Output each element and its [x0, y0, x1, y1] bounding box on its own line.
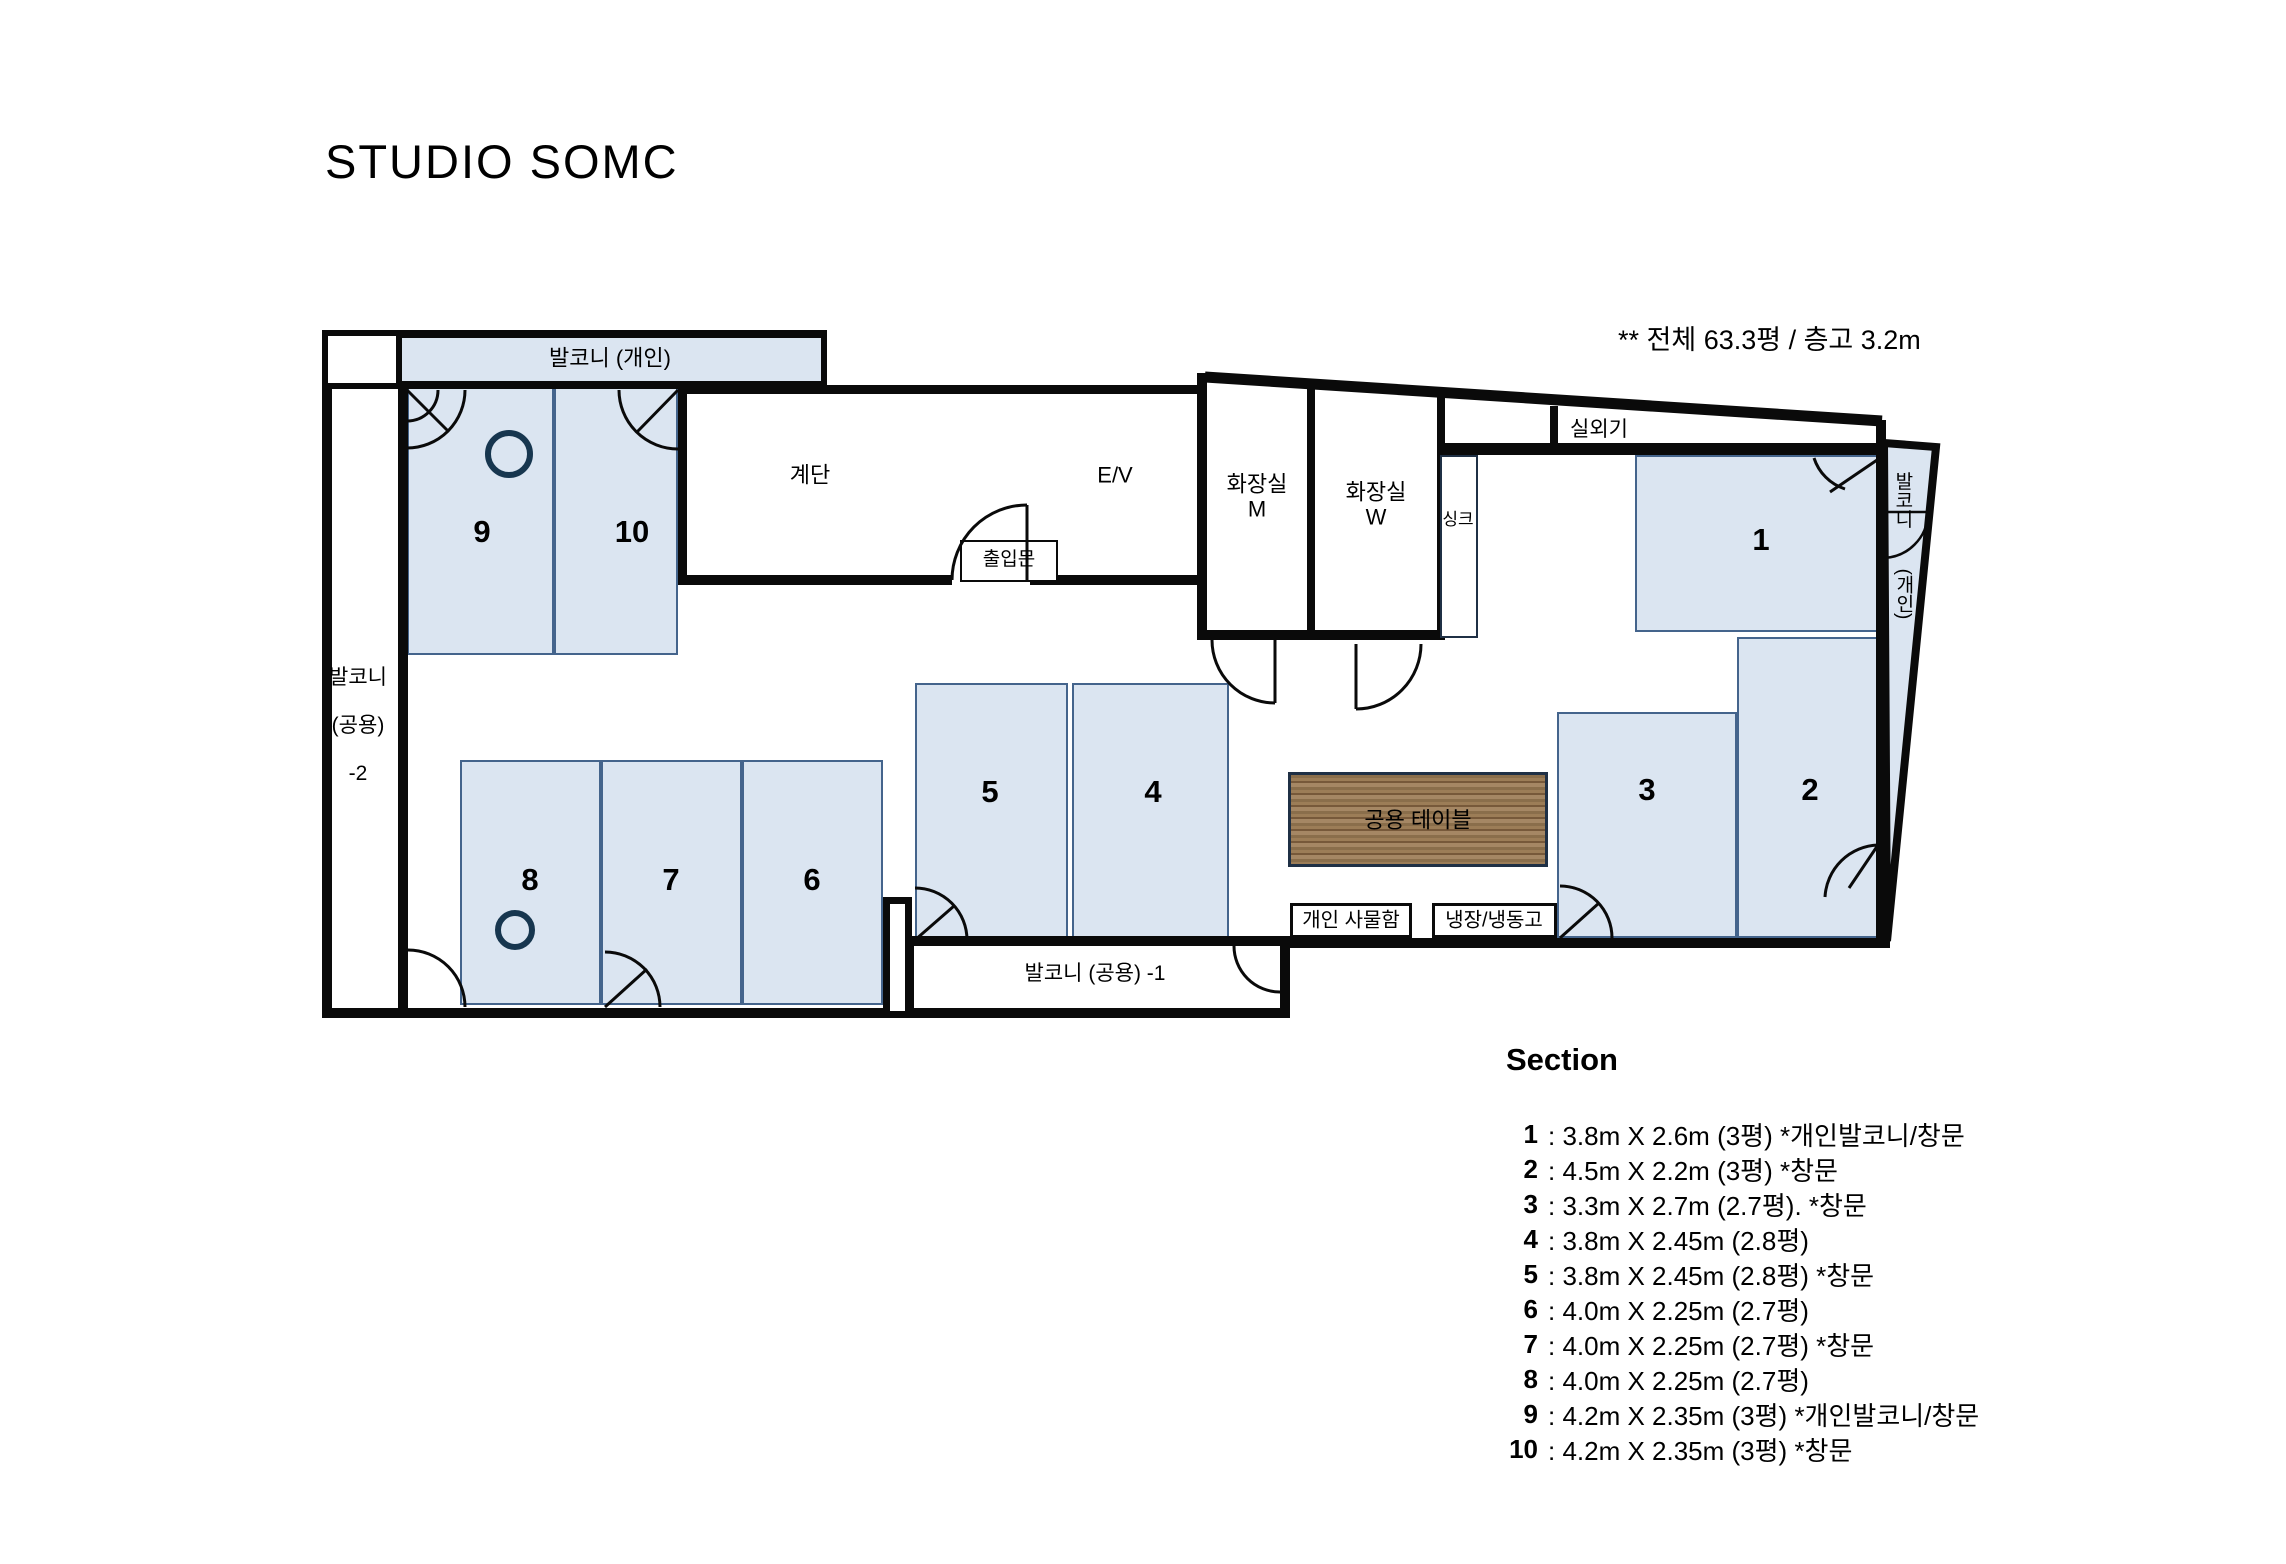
- wall-balc1-right: [1280, 936, 1290, 1018]
- section-item: 7: 4.0m X 2.25m (2.7평) *창문: [1496, 1327, 1979, 1362]
- room-8-label: 8: [521, 862, 538, 898]
- section-item: 4: 3.8m X 2.45m (2.8평): [1496, 1222, 1979, 1257]
- room-5: [915, 683, 1068, 940]
- floor-plan-page: STUDIO SOMC ** 전체 63.3평 / 층고 3.2m: [0, 0, 2286, 1564]
- entrance-label: 출입문: [983, 549, 1035, 571]
- wall-outdoor-divider: [1550, 406, 1558, 446]
- toilet-m-label: 화장실 M: [1227, 472, 1288, 523]
- wall-stub: [883, 897, 912, 1018]
- wall-stairs-top: [678, 385, 1205, 394]
- section-list: 1: 3.8m X 2.6m (3평) *개인발코니/창문 2: 4.5m X …: [1496, 1117, 1979, 1467]
- room-9-label: 9: [473, 514, 490, 550]
- page-title: STUDIO SOMC: [325, 134, 679, 189]
- wall-right-inner: [1876, 420, 1886, 941]
- wall-stairs-bottom-a: [678, 575, 952, 585]
- room-10-label: 10: [615, 514, 649, 550]
- section-item: 8: 4.0m X 2.25m (2.7평): [1496, 1362, 1979, 1397]
- balcony-right-label-1: 발코니: [1891, 472, 1913, 529]
- common-table-label: 공용 테이블: [1364, 807, 1471, 832]
- elevator-label: E/V: [1097, 462, 1132, 487]
- total-area-note: ** 전체 63.3평 / 층고 3.2m: [1618, 318, 1921, 357]
- room-5-label: 5: [981, 774, 998, 810]
- balcony-left-label-3: -2: [349, 762, 368, 786]
- room-1-label: 1: [1752, 522, 1769, 558]
- outdoor-unit-label: 실외기: [1570, 418, 1628, 442]
- corner-box: [322, 330, 402, 389]
- room-2-label: 2: [1801, 772, 1818, 808]
- wall-ev-toiletm: [1197, 373, 1207, 640]
- sink-label: 싱크: [1442, 510, 1473, 530]
- balcony-left-label-1: 발코니: [329, 666, 387, 690]
- wall-bottom-right: [1287, 938, 1890, 948]
- section-item: 3: 3.3m X 2.7m (2.7평). *창문: [1496, 1187, 1979, 1222]
- room-4-label: 4: [1144, 774, 1161, 810]
- toilet-w-label: 화장실 W: [1346, 480, 1407, 531]
- balcony-top-label: 발코니 (개인): [549, 345, 671, 370]
- door-balcony2-arc: [408, 950, 465, 1007]
- wall-room1-top: [1437, 443, 1886, 455]
- fridge-label: 냉장/냉동고: [1445, 910, 1543, 933]
- door-balcony1-arc: [1234, 946, 1280, 992]
- room-4: [1072, 683, 1229, 940]
- door-toiletw-arc: [1356, 644, 1421, 709]
- balcony-left-label-2: (공용): [332, 714, 385, 738]
- wall-balc1-top: [904, 936, 1290, 946]
- section-heading: Section: [1506, 1042, 1618, 1078]
- room-7-label: 7: [662, 862, 679, 898]
- section-item: 6: 4.0m X 2.25m (2.7평): [1496, 1292, 1979, 1327]
- sink-box: [1440, 455, 1478, 638]
- section-item: 5: 3.8m X 2.45m (2.8평) *창문: [1496, 1257, 1979, 1292]
- lockers-label: 개인 사물함: [1302, 910, 1400, 933]
- section-item: 2: 4.5m X 2.2m (3평) *창문: [1496, 1152, 1979, 1187]
- room-6-label: 6: [803, 862, 820, 898]
- wall-toilets-bottom: [1197, 630, 1445, 640]
- wall-toiletm-w: [1307, 383, 1315, 640]
- wall-bottom-left: [322, 1008, 1287, 1018]
- room-3-label: 3: [1638, 772, 1655, 808]
- room-3: [1557, 712, 1737, 938]
- section-item: 9: 4.2m X 2.35m (3평) *개인발코니/창문: [1496, 1397, 1979, 1432]
- wall-left-inner: [398, 381, 408, 1018]
- section-item: 1: 3.8m X 2.6m (3평) *개인발코니/창문: [1496, 1117, 1979, 1152]
- stairs-label: 계단: [790, 462, 830, 487]
- balcony-right-label-2: (개인): [1892, 569, 1914, 620]
- balcony-bottom-label: 발코니 (공용) -1: [1025, 962, 1166, 986]
- section-item: 10: 4.2m X 2.35m (3평) *창문: [1496, 1432, 1979, 1467]
- wall-stairs-left: [678, 385, 687, 585]
